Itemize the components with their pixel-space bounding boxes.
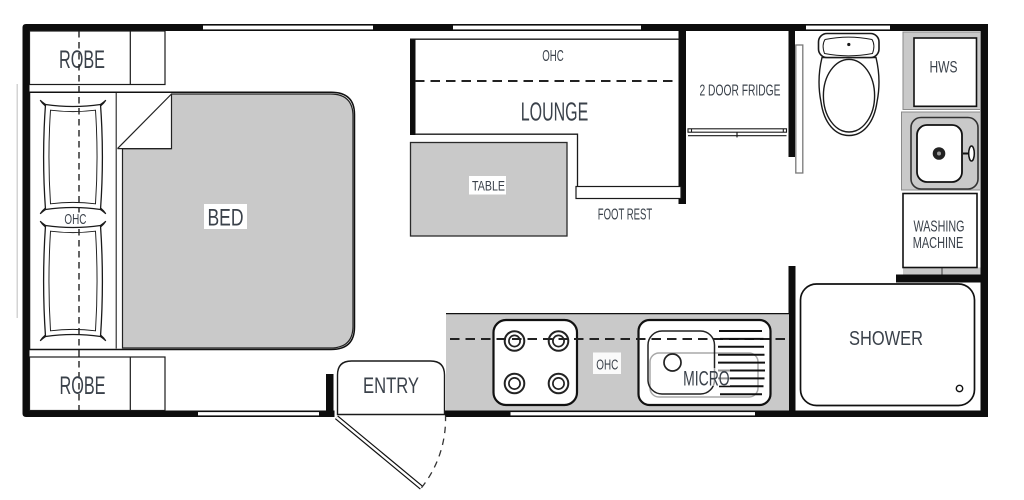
svg-text:LOUNGE: LOUNGE bbox=[521, 97, 589, 127]
svg-text:FOOT REST: FOOT REST bbox=[598, 207, 653, 224]
svg-text:TABLE: TABLE bbox=[472, 178, 505, 194]
svg-text:ENTRY: ENTRY bbox=[363, 373, 419, 398]
svg-text:OHC: OHC bbox=[64, 211, 86, 228]
svg-text:BED: BED bbox=[208, 205, 244, 232]
svg-text:SHOWER: SHOWER bbox=[849, 328, 923, 350]
svg-text:ROBE: ROBE bbox=[59, 46, 105, 74]
svg-text:MACHINE: MACHINE bbox=[913, 235, 964, 252]
svg-text:MICRO: MICRO bbox=[683, 368, 730, 391]
svg-text:2 DOOR FRIDGE: 2 DOOR FRIDGE bbox=[700, 83, 781, 100]
svg-text:WASHING: WASHING bbox=[914, 219, 965, 236]
svg-text:OHC: OHC bbox=[596, 357, 618, 374]
svg-text:OHC: OHC bbox=[542, 48, 564, 65]
svg-text:ROBE: ROBE bbox=[60, 372, 106, 400]
svg-text:HWS: HWS bbox=[930, 59, 958, 77]
